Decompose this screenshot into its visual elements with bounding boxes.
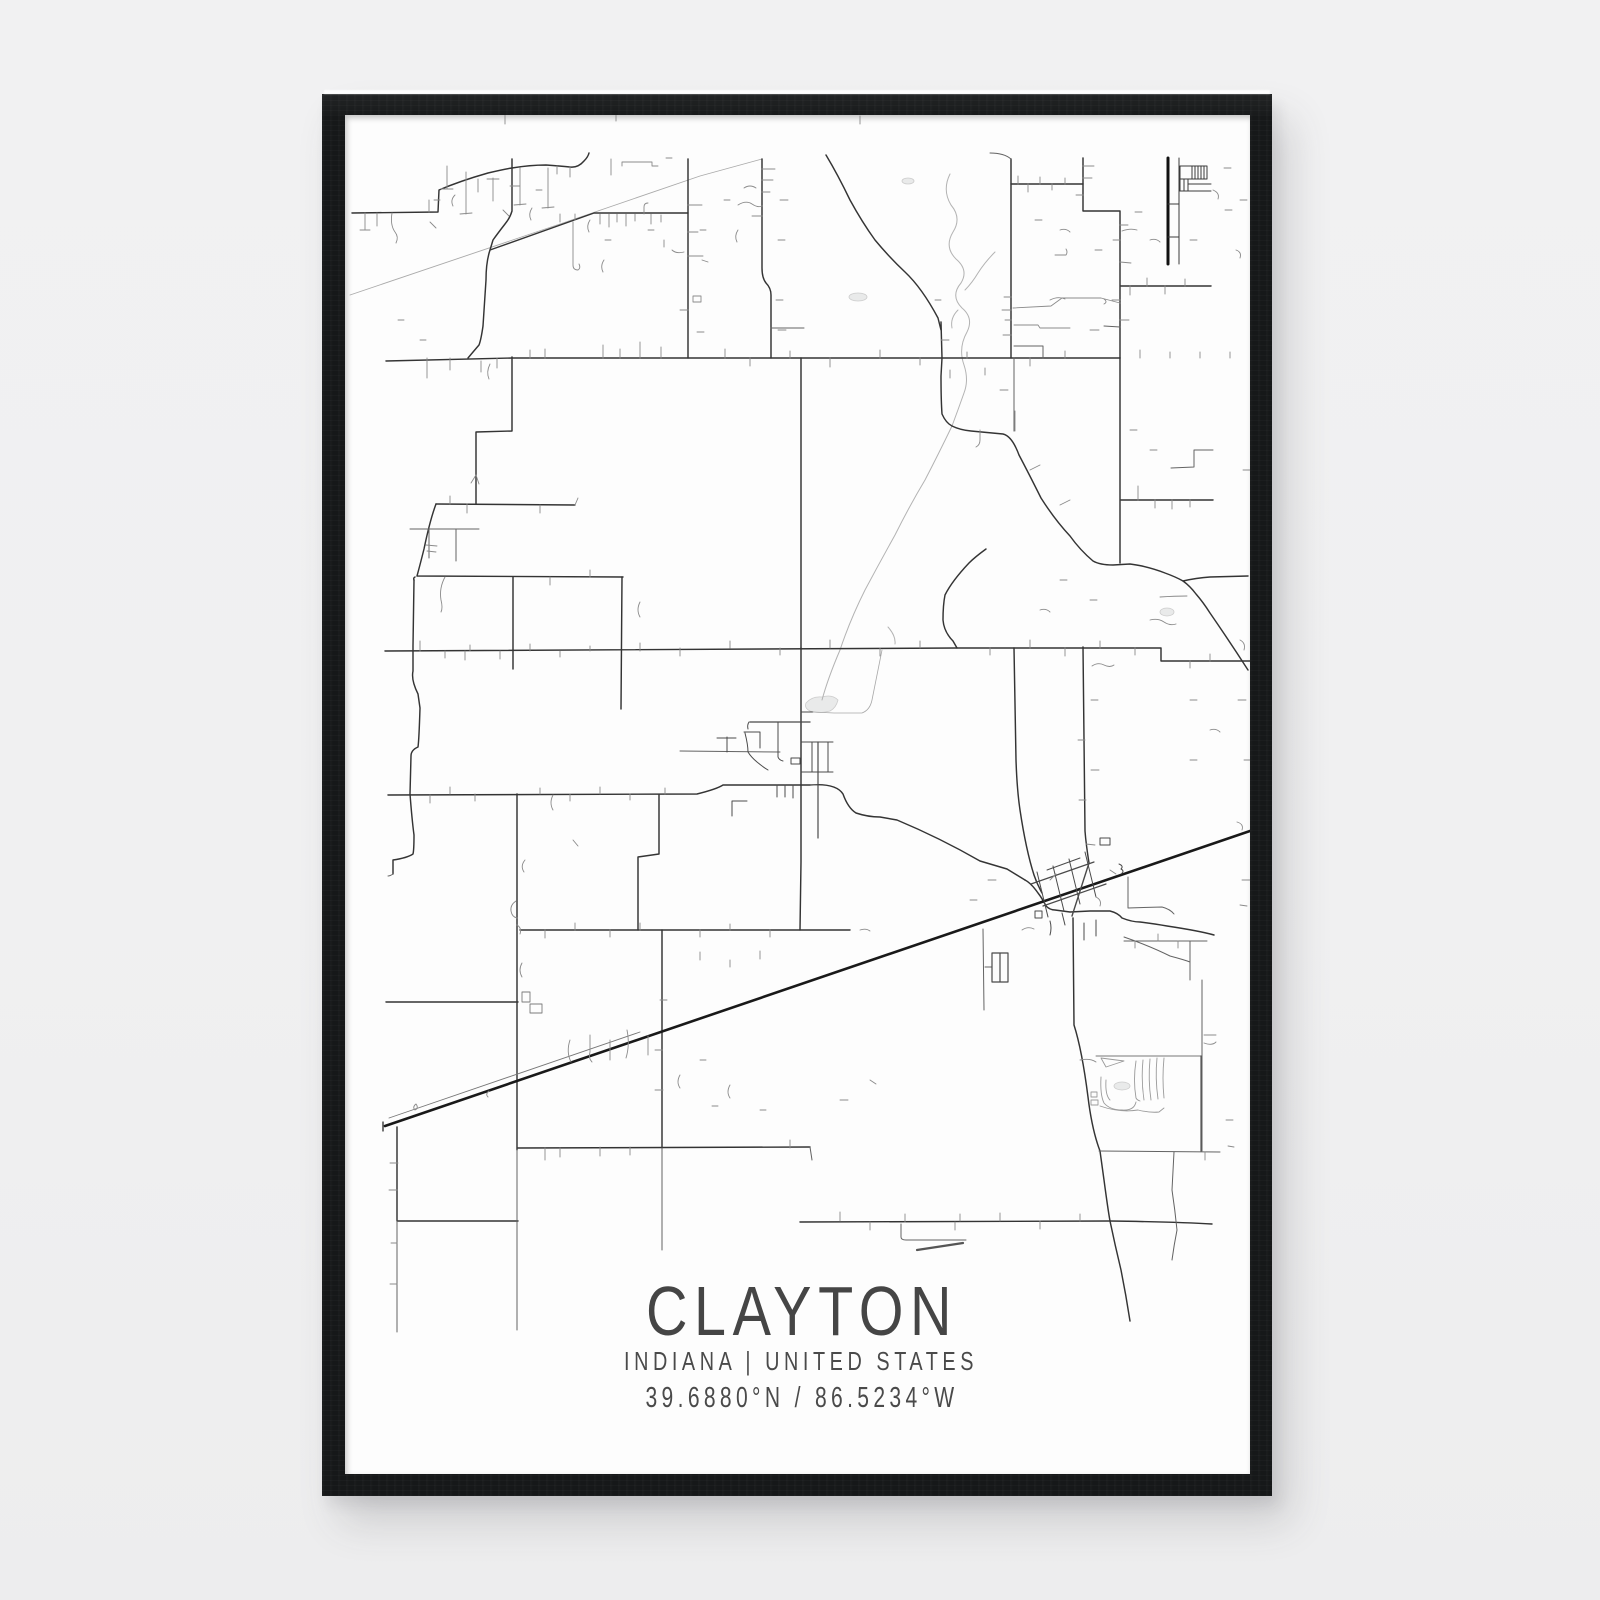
svg-text:CLAYTON: CLAYTON (646, 1272, 958, 1350)
svg-text:INDIANA | UNITED STATES: INDIANA | UNITED STATES (624, 1346, 978, 1376)
svg-text:39.6880°N / 86.5234°W: 39.6880°N / 86.5234°W (646, 1382, 959, 1414)
